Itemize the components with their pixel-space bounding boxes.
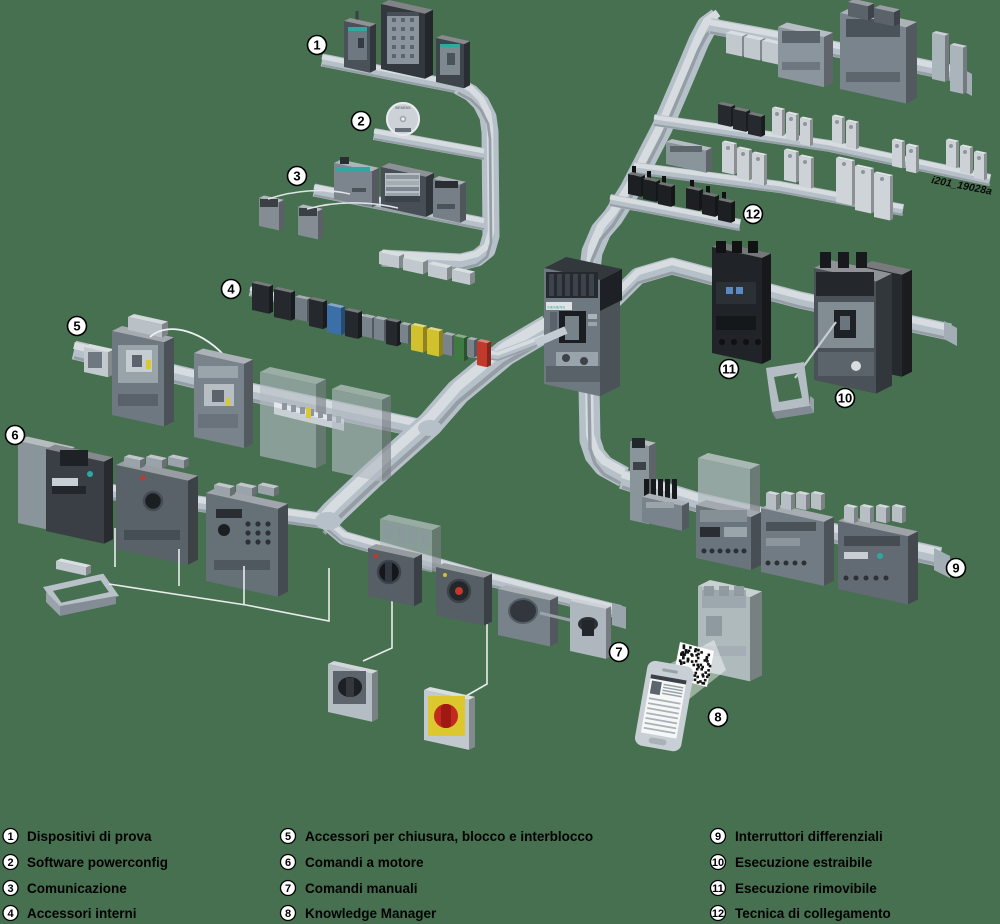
svg-text:Accessori interni: Accessori interni [27,906,137,921]
svg-text:Accessori per chiusura, blocco: Accessori per chiusura, blocco e interbl… [305,829,593,844]
svg-text:4: 4 [7,908,14,920]
svg-text:7: 7 [615,645,622,660]
svg-text:Software powerconfig: Software powerconfig [27,855,168,870]
svg-text:7: 7 [285,883,291,895]
svg-text:8: 8 [714,710,721,725]
svg-text:Interruttori differenziali: Interruttori differenziali [735,829,883,844]
svg-text:Esecuzione estraibile: Esecuzione estraibile [735,855,873,870]
svg-text:Comandi a motore: Comandi a motore [305,855,424,870]
svg-text:6: 6 [285,857,291,869]
svg-text:2: 2 [357,114,364,129]
svg-text:4: 4 [227,282,235,297]
svg-text:9: 9 [715,831,721,843]
svg-text:SIEMENS: SIEMENS [395,106,411,110]
svg-text:Tecnica di collegamento: Tecnica di collegamento [735,906,891,921]
svg-text:2: 2 [7,857,13,869]
svg-text:1: 1 [7,831,13,843]
svg-text:1: 1 [313,38,320,53]
svg-text:12: 12 [712,908,724,920]
svg-text:10: 10 [712,857,724,869]
svg-text:Knowledge Manager: Knowledge Manager [305,906,437,921]
svg-text:Esecuzione rimovibile: Esecuzione rimovibile [735,881,877,896]
svg-text:10: 10 [838,391,852,406]
svg-text:Comandi manuali: Comandi manuali [305,881,418,896]
svg-text:6: 6 [11,428,18,443]
svg-text:8: 8 [285,908,291,920]
svg-text:11: 11 [712,883,724,895]
svg-text:Comunicazione: Comunicazione [27,881,127,896]
svg-text:11: 11 [722,362,736,377]
svg-text:12: 12 [746,207,760,222]
svg-text:3: 3 [7,883,13,895]
svg-text:9: 9 [952,561,959,576]
svg-text:SIEMENS: SIEMENS [547,305,565,310]
svg-text:Dispositivi di prova: Dispositivi di prova [27,829,152,844]
svg-text:5: 5 [73,319,80,334]
svg-text:5: 5 [285,831,291,843]
svg-text:3: 3 [293,169,300,184]
